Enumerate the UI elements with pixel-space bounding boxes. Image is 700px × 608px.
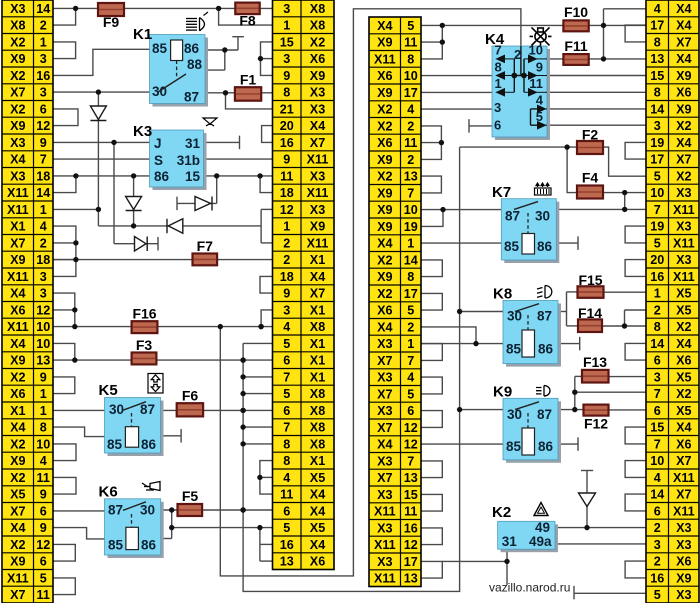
svg-text:X3: X3 <box>676 521 691 535</box>
svg-text:X6: X6 <box>310 52 325 66</box>
svg-text:X8: X8 <box>310 404 325 418</box>
svg-text:12: 12 <box>36 538 50 552</box>
svg-text:7: 7 <box>40 153 47 167</box>
svg-text:X7: X7 <box>310 287 325 301</box>
svg-text:5: 5 <box>654 236 661 250</box>
svg-text:7: 7 <box>407 354 414 368</box>
svg-text:K5: K5 <box>99 382 118 399</box>
svg-text:85: 85 <box>108 538 124 553</box>
svg-text:X2: X2 <box>377 170 392 184</box>
svg-text:F9: F9 <box>103 14 120 30</box>
svg-text:K2: K2 <box>492 504 511 521</box>
svg-text:11: 11 <box>404 136 417 150</box>
svg-text:10: 10 <box>36 337 50 351</box>
svg-text:85: 85 <box>506 439 522 454</box>
svg-text:14: 14 <box>36 186 50 200</box>
svg-text:6: 6 <box>654 504 661 518</box>
svg-text:4: 4 <box>654 2 661 16</box>
svg-text:X7: X7 <box>676 454 691 468</box>
svg-text:10: 10 <box>650 454 664 468</box>
svg-text:86: 86 <box>141 538 157 553</box>
svg-text:87: 87 <box>537 407 552 422</box>
svg-text:15: 15 <box>280 35 294 49</box>
svg-text:14: 14 <box>650 337 664 351</box>
svg-text:X6: X6 <box>310 555 325 569</box>
svg-text:10: 10 <box>36 320 50 334</box>
svg-text:X4: X4 <box>377 438 392 452</box>
svg-text:7: 7 <box>654 203 661 217</box>
svg-text:2: 2 <box>283 236 290 250</box>
svg-text:1: 1 <box>407 337 414 351</box>
svg-text:X4: X4 <box>676 19 691 33</box>
svg-text:18: 18 <box>36 253 50 267</box>
svg-text:X2: X2 <box>377 103 392 117</box>
svg-text:17: 17 <box>404 287 418 301</box>
svg-text:X6: X6 <box>676 86 691 100</box>
svg-text:F10: F10 <box>564 4 588 20</box>
svg-text:86: 86 <box>184 41 200 56</box>
svg-text:87: 87 <box>537 309 552 324</box>
svg-text:3: 3 <box>283 303 290 317</box>
svg-text:X5: X5 <box>676 370 691 384</box>
svg-text:9: 9 <box>40 370 47 384</box>
svg-text:16: 16 <box>280 538 294 552</box>
svg-text:K8: K8 <box>493 286 512 303</box>
svg-text:8: 8 <box>654 86 661 100</box>
svg-text:X2: X2 <box>676 387 691 401</box>
svg-text:5: 5 <box>654 169 661 183</box>
svg-text:2: 2 <box>407 119 414 133</box>
svg-text:X9: X9 <box>676 571 691 585</box>
svg-text:7: 7 <box>407 186 414 200</box>
svg-text:X4: X4 <box>676 136 691 150</box>
svg-text:1: 1 <box>495 76 502 91</box>
svg-text:13: 13 <box>404 170 418 184</box>
svg-text:30: 30 <box>507 309 522 324</box>
svg-text:F13: F13 <box>583 354 607 370</box>
svg-text:4: 4 <box>536 93 544 108</box>
svg-text:X4: X4 <box>310 270 325 284</box>
svg-text:6: 6 <box>654 404 661 418</box>
svg-text:X8: X8 <box>310 320 325 334</box>
svg-text:17: 17 <box>650 153 664 167</box>
svg-text:30: 30 <box>109 402 124 417</box>
svg-text:9: 9 <box>283 153 290 167</box>
svg-text:X4: X4 <box>10 153 25 167</box>
svg-text:X5: X5 <box>676 303 691 317</box>
svg-text:4: 4 <box>283 471 290 485</box>
svg-text:87: 87 <box>108 503 123 518</box>
svg-text:8: 8 <box>283 437 290 451</box>
svg-text:X3: X3 <box>377 404 392 418</box>
svg-text:16: 16 <box>404 521 418 535</box>
svg-text:7: 7 <box>283 421 290 435</box>
svg-text:X7: X7 <box>377 471 392 485</box>
svg-text:X5: X5 <box>676 404 691 418</box>
svg-text:10: 10 <box>650 186 664 200</box>
svg-text:6: 6 <box>283 404 290 418</box>
svg-text:X9: X9 <box>377 220 392 234</box>
svg-text:X7: X7 <box>10 588 25 602</box>
svg-text:X5: X5 <box>10 488 25 502</box>
svg-text:10: 10 <box>404 203 418 217</box>
svg-text:87: 87 <box>505 209 520 224</box>
svg-text:X9: X9 <box>377 270 392 284</box>
svg-text:X2: X2 <box>10 538 25 552</box>
svg-text:30: 30 <box>535 209 550 224</box>
svg-text:X11: X11 <box>7 270 29 284</box>
svg-text:9: 9 <box>536 59 543 74</box>
svg-text:X6: X6 <box>10 303 25 317</box>
svg-text:13: 13 <box>404 471 418 485</box>
svg-text:3: 3 <box>40 270 47 284</box>
svg-text:2: 2 <box>40 236 47 250</box>
svg-text:X11: X11 <box>374 538 396 552</box>
svg-text:X1: X1 <box>310 370 325 384</box>
svg-text:X4: X4 <box>676 421 691 435</box>
svg-text:X6: X6 <box>377 69 392 83</box>
svg-text:X5: X5 <box>310 471 325 485</box>
svg-text:X1: X1 <box>10 404 25 418</box>
svg-text:6: 6 <box>283 354 290 368</box>
svg-text:2: 2 <box>654 555 661 569</box>
svg-text:2: 2 <box>40 19 47 33</box>
svg-text:X4: X4 <box>676 2 691 16</box>
svg-text:8: 8 <box>495 59 502 74</box>
svg-text:X4: X4 <box>310 488 325 502</box>
svg-text:X9: X9 <box>310 69 325 83</box>
svg-text:X4: X4 <box>10 337 25 351</box>
svg-text:X4: X4 <box>310 504 325 518</box>
svg-text:7: 7 <box>654 387 661 401</box>
svg-text:X7: X7 <box>377 421 392 435</box>
svg-text:9: 9 <box>40 136 47 150</box>
svg-text:14: 14 <box>404 253 418 267</box>
svg-text:X9: X9 <box>10 119 25 133</box>
svg-text:8: 8 <box>654 320 661 334</box>
svg-text:X4: X4 <box>310 538 325 552</box>
svg-text:X7: X7 <box>10 504 25 518</box>
svg-text:2: 2 <box>407 320 414 334</box>
svg-text:X6: X6 <box>10 387 25 401</box>
svg-text:X8: X8 <box>310 437 325 451</box>
svg-text:X9: X9 <box>10 354 25 368</box>
svg-text:13: 13 <box>36 354 50 368</box>
svg-text:8: 8 <box>40 421 47 435</box>
svg-text:17: 17 <box>404 555 418 569</box>
svg-text:X4: X4 <box>10 421 25 435</box>
svg-text:1: 1 <box>40 387 47 401</box>
svg-text:X7: X7 <box>10 86 25 100</box>
svg-text:16: 16 <box>650 571 664 585</box>
svg-text:X1: X1 <box>310 253 325 267</box>
svg-text:8: 8 <box>407 52 414 66</box>
svg-text:X7: X7 <box>676 488 691 502</box>
svg-text:X3: X3 <box>676 253 691 267</box>
svg-text:F6: F6 <box>182 388 199 404</box>
svg-text:X2: X2 <box>676 320 691 334</box>
svg-text:3: 3 <box>654 538 661 552</box>
svg-text:9: 9 <box>283 287 290 301</box>
svg-text:X9: X9 <box>377 203 392 217</box>
svg-text:18: 18 <box>280 270 294 284</box>
svg-text:J: J <box>154 136 162 151</box>
svg-text:31: 31 <box>502 534 518 549</box>
svg-text:F14: F14 <box>578 305 602 321</box>
svg-text:X11: X11 <box>374 52 396 66</box>
svg-text:3: 3 <box>40 52 47 66</box>
svg-text:X5: X5 <box>310 521 325 535</box>
svg-text:X3: X3 <box>676 220 691 234</box>
svg-text:16: 16 <box>36 69 50 83</box>
svg-text:30: 30 <box>507 407 522 422</box>
svg-text:X1: X1 <box>310 354 325 368</box>
svg-text:3: 3 <box>654 370 661 384</box>
svg-text:X1: X1 <box>310 303 325 317</box>
svg-text:X7: X7 <box>676 35 691 49</box>
svg-text:2: 2 <box>514 47 521 62</box>
svg-text:16: 16 <box>650 270 664 284</box>
svg-text:X11: X11 <box>7 186 29 200</box>
svg-text:X3: X3 <box>377 454 392 468</box>
svg-text:1: 1 <box>407 237 414 251</box>
svg-text:9: 9 <box>40 521 47 535</box>
svg-text:X9: X9 <box>10 253 25 267</box>
svg-text:12: 12 <box>404 421 418 435</box>
svg-text:19: 19 <box>404 220 418 234</box>
svg-text:2: 2 <box>407 153 414 167</box>
svg-text:X3: X3 <box>377 555 392 569</box>
svg-text:8: 8 <box>654 35 661 49</box>
svg-text:X4: X4 <box>377 320 392 334</box>
svg-text:14: 14 <box>650 488 664 502</box>
svg-text:88: 88 <box>187 57 203 72</box>
svg-text:X2: X2 <box>676 169 691 183</box>
svg-text:86: 86 <box>537 239 553 254</box>
svg-text:X4: X4 <box>377 237 392 251</box>
svg-text:X11: X11 <box>673 504 695 518</box>
svg-text:X2: X2 <box>10 437 25 451</box>
svg-text:X9: X9 <box>377 36 392 50</box>
svg-text:15: 15 <box>650 69 664 83</box>
svg-text:5: 5 <box>40 571 47 585</box>
svg-text:F15: F15 <box>578 272 602 288</box>
svg-text:4: 4 <box>283 320 290 334</box>
svg-text:F11: F11 <box>564 38 588 54</box>
svg-text:5: 5 <box>654 588 661 602</box>
svg-text:X2: X2 <box>377 287 392 301</box>
svg-text:5: 5 <box>407 19 414 33</box>
svg-text:13: 13 <box>404 572 418 586</box>
svg-text:18: 18 <box>280 186 294 200</box>
svg-text:14: 14 <box>36 2 50 16</box>
svg-text:7: 7 <box>495 43 502 58</box>
svg-text:X8: X8 <box>310 19 325 33</box>
svg-text:12: 12 <box>36 119 50 133</box>
svg-text:X5: X5 <box>676 287 691 301</box>
svg-text:6: 6 <box>40 504 47 518</box>
svg-text:17: 17 <box>650 19 664 33</box>
svg-text:30: 30 <box>140 503 155 518</box>
svg-text:49: 49 <box>535 520 550 535</box>
svg-text:X4: X4 <box>10 521 25 535</box>
svg-text:X7: X7 <box>10 236 25 250</box>
svg-text:4: 4 <box>407 103 414 117</box>
svg-text:11: 11 <box>280 488 293 502</box>
svg-text:85: 85 <box>504 239 520 254</box>
svg-text:3: 3 <box>283 2 290 16</box>
svg-text:X1: X1 <box>310 454 325 468</box>
svg-text:X8: X8 <box>310 421 325 435</box>
svg-text:1: 1 <box>40 35 47 49</box>
svg-text:4: 4 <box>654 471 661 485</box>
svg-text:K9: K9 <box>493 384 512 401</box>
svg-text:X3: X3 <box>10 169 25 183</box>
svg-text:X3: X3 <box>676 538 691 552</box>
svg-text:X9: X9 <box>377 86 392 100</box>
svg-text:9: 9 <box>40 488 47 502</box>
svg-text:85: 85 <box>506 342 522 357</box>
svg-text:F3: F3 <box>136 337 153 353</box>
svg-text:X11: X11 <box>673 471 695 485</box>
svg-text:X6: X6 <box>377 136 392 150</box>
svg-text:F7: F7 <box>197 238 214 254</box>
svg-text:20: 20 <box>280 119 294 133</box>
svg-text:X7: X7 <box>377 354 392 368</box>
svg-text:4: 4 <box>40 220 47 234</box>
svg-text:X7: X7 <box>377 387 392 401</box>
svg-text:X2: X2 <box>10 471 25 485</box>
svg-text:K3: K3 <box>133 123 152 140</box>
svg-text:X9: X9 <box>10 454 25 468</box>
svg-text:S: S <box>154 153 163 168</box>
svg-text:F1: F1 <box>240 72 257 88</box>
svg-text:X3: X3 <box>10 2 25 16</box>
svg-text:F4: F4 <box>582 170 599 186</box>
svg-text:X9: X9 <box>377 186 392 200</box>
svg-text:1: 1 <box>654 287 661 301</box>
svg-text:13: 13 <box>280 555 294 569</box>
svg-text:21: 21 <box>280 102 294 116</box>
svg-text:X3: X3 <box>310 102 325 116</box>
svg-text:3: 3 <box>494 100 501 115</box>
svg-text:4: 4 <box>40 454 47 468</box>
svg-text:vazillo.narod.ru: vazillo.narod.ru <box>489 581 570 595</box>
svg-text:X9: X9 <box>10 555 25 569</box>
svg-text:31b: 31b <box>177 153 200 168</box>
svg-text:11: 11 <box>37 471 50 485</box>
svg-text:X6: X6 <box>676 555 691 569</box>
svg-text:X3: X3 <box>377 371 392 385</box>
svg-text:X3: X3 <box>676 186 691 200</box>
svg-text:5: 5 <box>407 304 414 318</box>
svg-text:X9: X9 <box>676 69 691 83</box>
svg-text:X3: X3 <box>377 488 392 502</box>
svg-text:20: 20 <box>650 253 664 267</box>
svg-text:X2: X2 <box>10 102 25 116</box>
svg-text:5: 5 <box>283 387 290 401</box>
svg-text:12: 12 <box>280 203 294 217</box>
svg-text:1: 1 <box>283 220 290 234</box>
svg-text:2: 2 <box>654 521 661 535</box>
svg-text:X11: X11 <box>7 320 29 334</box>
svg-text:X3: X3 <box>310 169 325 183</box>
svg-text:11: 11 <box>404 36 417 50</box>
svg-text:X11: X11 <box>307 186 329 200</box>
svg-text:85: 85 <box>152 41 168 56</box>
svg-text:17: 17 <box>404 86 418 100</box>
svg-text:7: 7 <box>407 454 414 468</box>
svg-text:X9: X9 <box>310 220 325 234</box>
svg-text:X11: X11 <box>307 236 329 250</box>
svg-text:87: 87 <box>184 90 199 105</box>
svg-text:19: 19 <box>650 220 664 234</box>
svg-text:F8: F8 <box>239 13 256 29</box>
svg-text:19: 19 <box>650 136 664 150</box>
svg-text:12: 12 <box>404 438 418 452</box>
svg-text:F12: F12 <box>584 416 608 432</box>
svg-text:X8: X8 <box>10 19 25 33</box>
svg-text:X4: X4 <box>676 52 691 66</box>
svg-text:X2: X2 <box>377 119 392 133</box>
svg-text:6: 6 <box>40 555 47 569</box>
svg-text:F5: F5 <box>182 488 199 504</box>
svg-text:X3: X3 <box>310 203 325 217</box>
svg-text:9: 9 <box>283 69 290 83</box>
svg-text:K6: K6 <box>99 484 118 501</box>
svg-text:X4: X4 <box>310 119 325 133</box>
svg-text:8: 8 <box>407 270 414 284</box>
svg-text:X3: X3 <box>10 136 25 150</box>
svg-text:1: 1 <box>40 404 47 418</box>
svg-text:F16: F16 <box>132 306 156 322</box>
svg-text:14: 14 <box>650 102 664 116</box>
svg-text:15: 15 <box>404 488 418 502</box>
svg-text:X11: X11 <box>307 153 329 167</box>
svg-text:4: 4 <box>407 371 414 385</box>
svg-text:X1: X1 <box>10 220 25 234</box>
svg-text:X2: X2 <box>10 69 25 83</box>
svg-text:6: 6 <box>494 118 501 133</box>
svg-text:8: 8 <box>283 454 290 468</box>
svg-text:16: 16 <box>280 136 294 150</box>
svg-text:5: 5 <box>283 337 290 351</box>
svg-text:86: 86 <box>154 169 170 184</box>
svg-text:X11: X11 <box>673 270 695 284</box>
svg-text:X2: X2 <box>10 370 25 384</box>
svg-text:5: 5 <box>407 387 414 401</box>
svg-text:6: 6 <box>40 102 47 116</box>
svg-text:X2: X2 <box>10 35 25 49</box>
svg-text:2: 2 <box>283 253 290 267</box>
svg-text:86: 86 <box>538 439 554 454</box>
svg-text:3: 3 <box>654 119 661 133</box>
svg-text:10: 10 <box>404 69 418 83</box>
svg-text:X8: X8 <box>310 2 325 16</box>
svg-text:18: 18 <box>36 169 50 183</box>
svg-text:3: 3 <box>40 86 47 100</box>
svg-text:3: 3 <box>40 287 47 301</box>
svg-text:X3: X3 <box>676 588 691 602</box>
svg-text:X6: X6 <box>676 437 691 451</box>
svg-text:85: 85 <box>107 437 123 452</box>
svg-text:6: 6 <box>407 404 414 418</box>
svg-text:13: 13 <box>650 52 664 66</box>
svg-text:F2: F2 <box>582 126 599 142</box>
svg-text:6: 6 <box>654 354 661 368</box>
svg-text:X11: X11 <box>673 203 695 217</box>
svg-text:11: 11 <box>37 588 50 602</box>
